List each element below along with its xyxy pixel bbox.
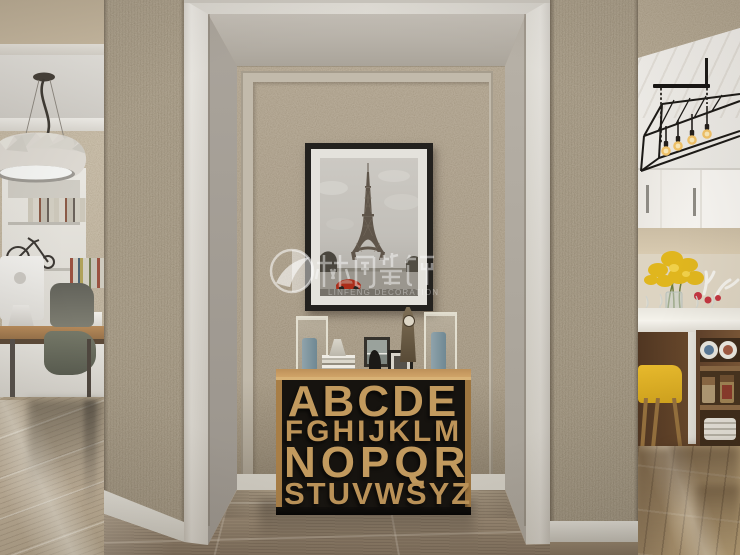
svg-text:LINFENG DECORATION: LINFENG DECORATION <box>328 288 439 297</box>
